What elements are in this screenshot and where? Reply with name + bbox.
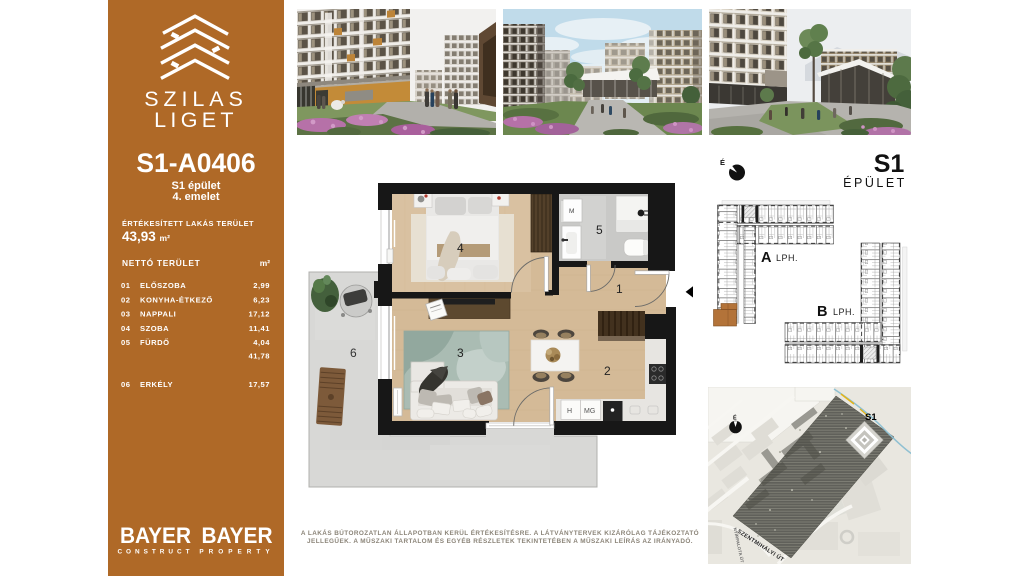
svg-text:FÜRDŐ: FÜRDŐ (140, 338, 170, 347)
svg-text:S1: S1 (865, 412, 877, 423)
svg-text:4: 4 (457, 241, 464, 255)
svg-text:1: 1 (616, 282, 623, 296)
svg-text:11,41: 11,41 (249, 324, 270, 333)
svg-text:02: 02 (121, 295, 130, 304)
svg-text:43,93 m²: 43,93 m² (122, 229, 170, 244)
svg-text:PROPERTY: PROPERTY (199, 549, 274, 556)
svg-text:LPH.: LPH. (776, 253, 798, 263)
svg-text:17,12: 17,12 (248, 310, 270, 319)
svg-text:NETTÓ TERÜLET: NETTÓ TERÜLET (122, 257, 201, 268)
svg-text:ÉRTÉKESÍTETT LAKÁS TERÜLET: ÉRTÉKESÍTETT LAKÁS TERÜLET (122, 219, 254, 228)
svg-text:6,23: 6,23 (253, 295, 270, 304)
svg-text:S1-A0406: S1-A0406 (136, 148, 255, 178)
svg-text:M: M (569, 208, 574, 215)
svg-text:KONYHA-ÉTKEZŐ: KONYHA-ÉTKEZŐ (140, 295, 213, 304)
svg-text:4,04: 4,04 (253, 338, 270, 347)
svg-text:03: 03 (121, 310, 130, 319)
svg-text:BAYER: BAYER (202, 523, 273, 548)
svg-text:A: A (761, 250, 772, 266)
svg-text:ELŐSZOBA: ELŐSZOBA (140, 281, 186, 290)
svg-text:6: 6 (350, 346, 357, 360)
svg-text:01: 01 (121, 281, 131, 290)
svg-text:BAYER: BAYER (120, 523, 191, 548)
svg-text:H: H (567, 408, 572, 415)
svg-text:05: 05 (121, 338, 131, 347)
svg-text:17,57: 17,57 (248, 380, 270, 389)
svg-text:É: É (733, 414, 737, 422)
svg-text:2: 2 (604, 364, 611, 378)
svg-text:B: B (817, 304, 827, 320)
svg-text:41,78: 41,78 (248, 352, 270, 361)
svg-text:MG: MG (584, 408, 595, 415)
svg-text:3: 3 (457, 346, 464, 360)
svg-text:04: 04 (121, 324, 131, 333)
svg-text:NAPPALI: NAPPALI (140, 310, 176, 319)
svg-text:LIGET: LIGET (154, 108, 238, 132)
svg-text:5: 5 (596, 223, 603, 237)
svg-text:4. emelet: 4. emelet (172, 191, 219, 203)
svg-text:ERKÉLY: ERKÉLY (140, 380, 173, 389)
svg-text:LPH.: LPH. (833, 307, 855, 317)
svg-text:SZOBA: SZOBA (140, 324, 169, 333)
svg-text:m²: m² (260, 258, 270, 268)
svg-text:É: É (720, 158, 725, 167)
svg-text:S1: S1 (874, 150, 905, 178)
svg-text:06: 06 (121, 380, 130, 389)
svg-text:ÉPÜLET: ÉPÜLET (843, 175, 907, 190)
svg-text:2,99: 2,99 (253, 281, 270, 290)
svg-text:CONSTRUCT: CONSTRUCT (117, 549, 193, 556)
